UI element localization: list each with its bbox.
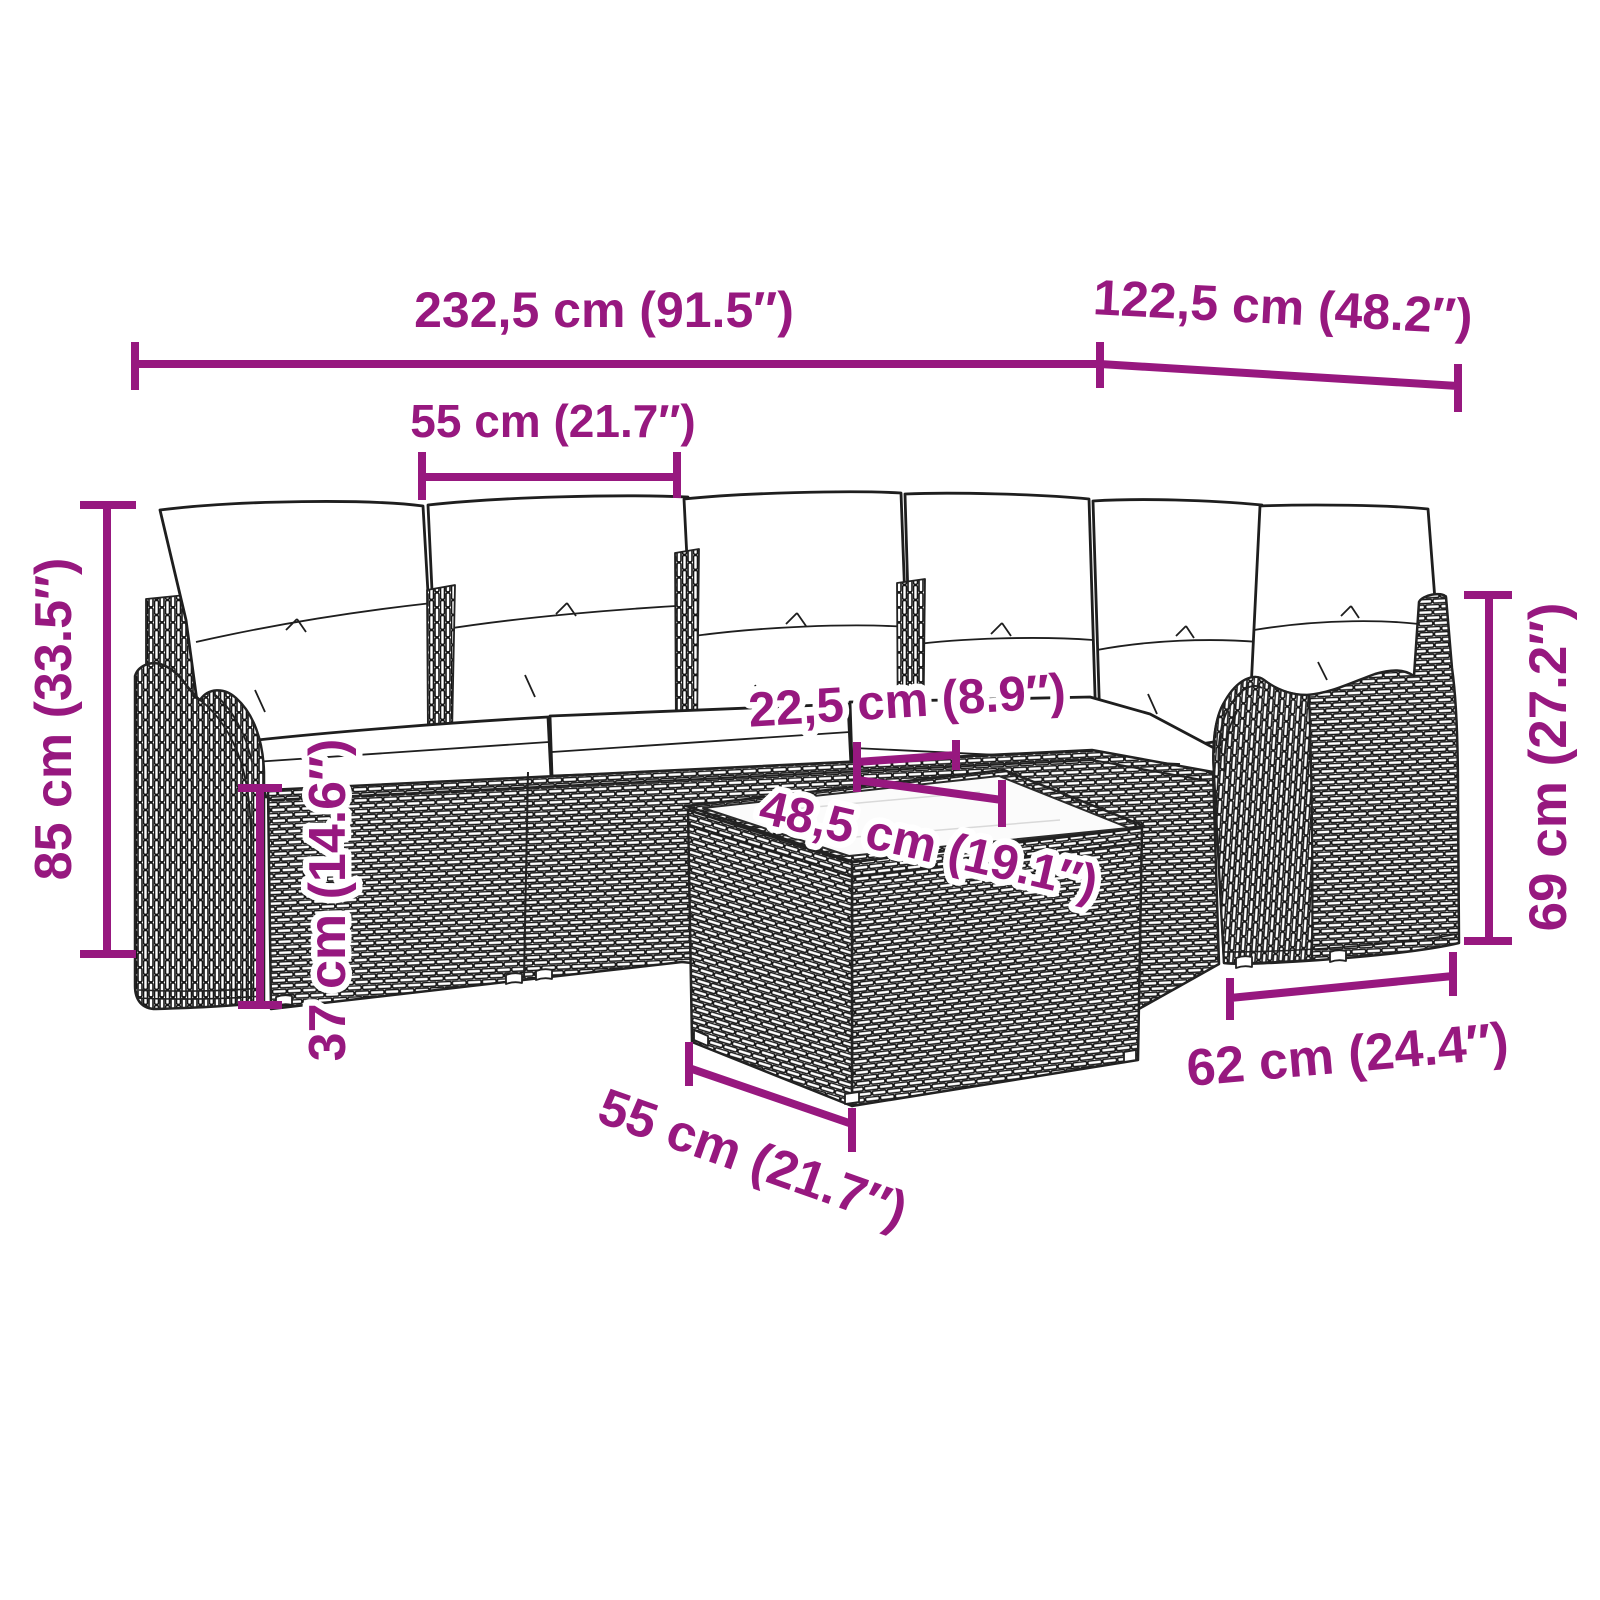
svg-text:232,5 cm (91.5″): 232,5 cm (91.5″) <box>414 282 794 338</box>
svg-text:55 cm (21.7″): 55 cm (21.7″) <box>410 395 695 447</box>
svg-text:37 cm (14.6″): 37 cm (14.6″) <box>299 739 357 1062</box>
svg-text:85 cm (33.5″): 85 cm (33.5″) <box>25 558 83 881</box>
svg-text:69 cm (27.2″): 69 cm (27.2″) <box>1519 603 1578 932</box>
